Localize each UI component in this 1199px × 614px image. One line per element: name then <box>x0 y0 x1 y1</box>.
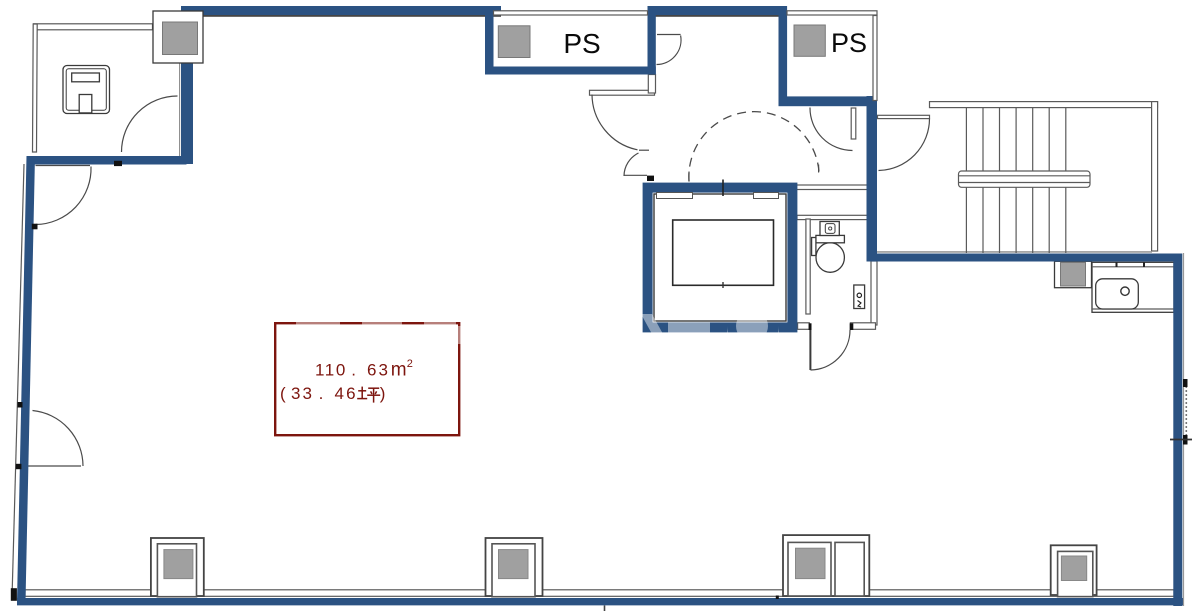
svg-text:m: m <box>391 360 407 381</box>
svg-text:2: 2 <box>407 358 413 370</box>
svg-text:(: ( <box>280 384 286 403</box>
svg-text:): ) <box>380 384 386 403</box>
svg-text:PS: PS <box>831 28 867 58</box>
svg-text:PS: PS <box>563 28 600 59</box>
svg-text:.: . <box>351 361 356 380</box>
svg-text:.: . <box>319 384 324 403</box>
svg-text:110: 110 <box>315 361 347 380</box>
svg-text:33: 33 <box>291 384 314 403</box>
svg-text:63: 63 <box>367 361 390 380</box>
svg-text:46: 46 <box>335 384 358 403</box>
